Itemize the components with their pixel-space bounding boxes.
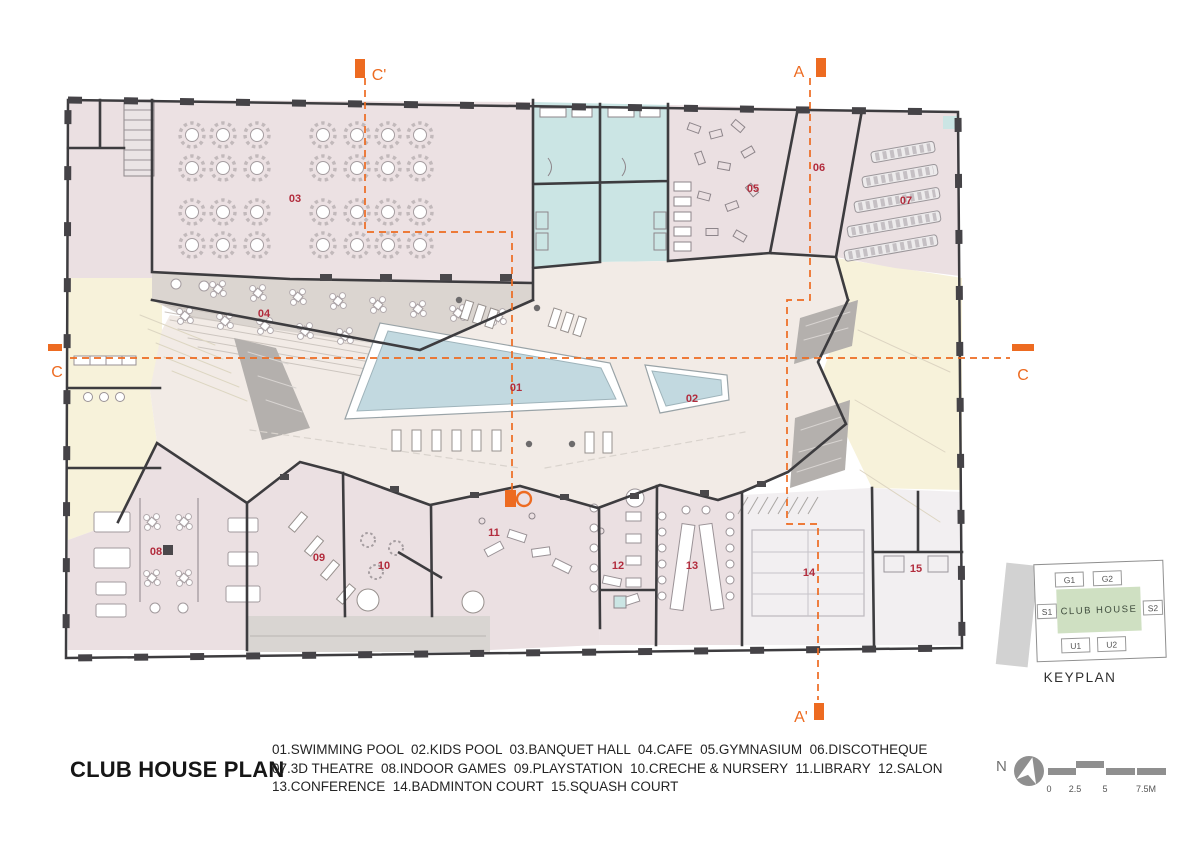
walkway-strip bbox=[247, 616, 490, 652]
north-letter: N bbox=[996, 758, 1007, 775]
section-label-c-right: C bbox=[1017, 367, 1029, 384]
north-compass-icon bbox=[1012, 754, 1046, 788]
section-marker-c-left bbox=[48, 344, 62, 351]
scale-tick-5: 5 bbox=[1102, 784, 1107, 794]
keyplan-clubhouse-cell: CLUB HOUSE bbox=[1056, 587, 1141, 634]
legend-line-2: 07.3D THEATRE 08.INDOOR GAMES 09.PLAYSTA… bbox=[272, 760, 972, 779]
room-label-09: 09 bbox=[313, 552, 325, 564]
scale-tick-2-5: 2.5 bbox=[1069, 784, 1082, 794]
sheet-title: CLUB HOUSE PLAN bbox=[70, 757, 284, 783]
room-label-12: 12 bbox=[612, 560, 624, 572]
room-label-11: 11 bbox=[488, 527, 500, 539]
keyplan-cell-s1: S1 bbox=[1037, 604, 1058, 620]
room-label-15: 15 bbox=[910, 563, 922, 575]
keyplan-cell-u2: U2 bbox=[1097, 636, 1127, 652]
section-marker-a-bottom bbox=[814, 703, 824, 720]
scale-tick-0: 0 bbox=[1046, 784, 1051, 794]
north-and-scale: N 0 2.5 5 7.5M bbox=[990, 752, 1200, 802]
room-label-04: 04 bbox=[258, 308, 271, 320]
room-label-01: 01 bbox=[510, 382, 522, 394]
club-house-plan-sheet: 01 02 03 04 05 06 07 08 09 10 11 12 13 1… bbox=[0, 0, 1200, 849]
room-legend: 01.SWIMMING POOL 02.KIDS POOL 03.BANQUET… bbox=[272, 741, 972, 797]
room-label-06: 06 bbox=[813, 162, 825, 174]
floor-plan: 01 02 03 04 05 06 07 08 09 10 11 12 13 1… bbox=[0, 0, 1200, 849]
room-label-08: 08 bbox=[150, 546, 162, 558]
section-label-c-left: C bbox=[51, 364, 63, 381]
keyplan: G1 G2 S1 S2 U1 U2 CLUB HOUSE KEYPLAN bbox=[995, 552, 1185, 692]
keyplan-cell-u1: U1 bbox=[1061, 637, 1091, 653]
legend-line-3: 13.CONFERENCE 14.BADMINTON COURT 15.SQUA… bbox=[272, 778, 972, 797]
keyplan-road-bar bbox=[996, 563, 1038, 668]
section-label-c-top: C' bbox=[372, 67, 387, 84]
scale-bar: 0 2.5 5 7.5M bbox=[1046, 758, 1196, 802]
section-marker-a-top bbox=[816, 58, 826, 77]
section-label-a-bottom: A' bbox=[794, 709, 808, 726]
keyplan-title: KEYPLAN bbox=[995, 670, 1165, 685]
legend-line-1: 01.SWIMMING POOL 02.KIDS POOL 03.BANQUET… bbox=[272, 741, 972, 760]
section-marker-c-end bbox=[505, 490, 516, 507]
room-label-10: 10 bbox=[378, 560, 390, 572]
keyplan-cell-g2: G2 bbox=[1093, 570, 1123, 586]
scale-tick-7-5: 7.5M bbox=[1136, 784, 1156, 794]
section-label-a-top: A bbox=[794, 64, 805, 81]
room-label-03: 03 bbox=[289, 193, 301, 205]
section-marker-c-right bbox=[1012, 344, 1034, 351]
room-label-13: 13 bbox=[686, 560, 698, 572]
section-marker-c-top bbox=[355, 59, 365, 78]
keyplan-cell-g1: G1 bbox=[1055, 572, 1085, 588]
keyplan-building: G1 G2 S1 S2 U1 U2 CLUB HOUSE bbox=[1033, 560, 1166, 662]
room-label-07: 07 bbox=[900, 195, 912, 207]
room-label-05: 05 bbox=[747, 183, 759, 195]
room-label-14: 14 bbox=[803, 567, 816, 579]
banquet-hall-area bbox=[152, 100, 533, 283]
room-label-02: 02 bbox=[686, 393, 698, 405]
keyplan-cell-s2: S2 bbox=[1143, 600, 1164, 616]
